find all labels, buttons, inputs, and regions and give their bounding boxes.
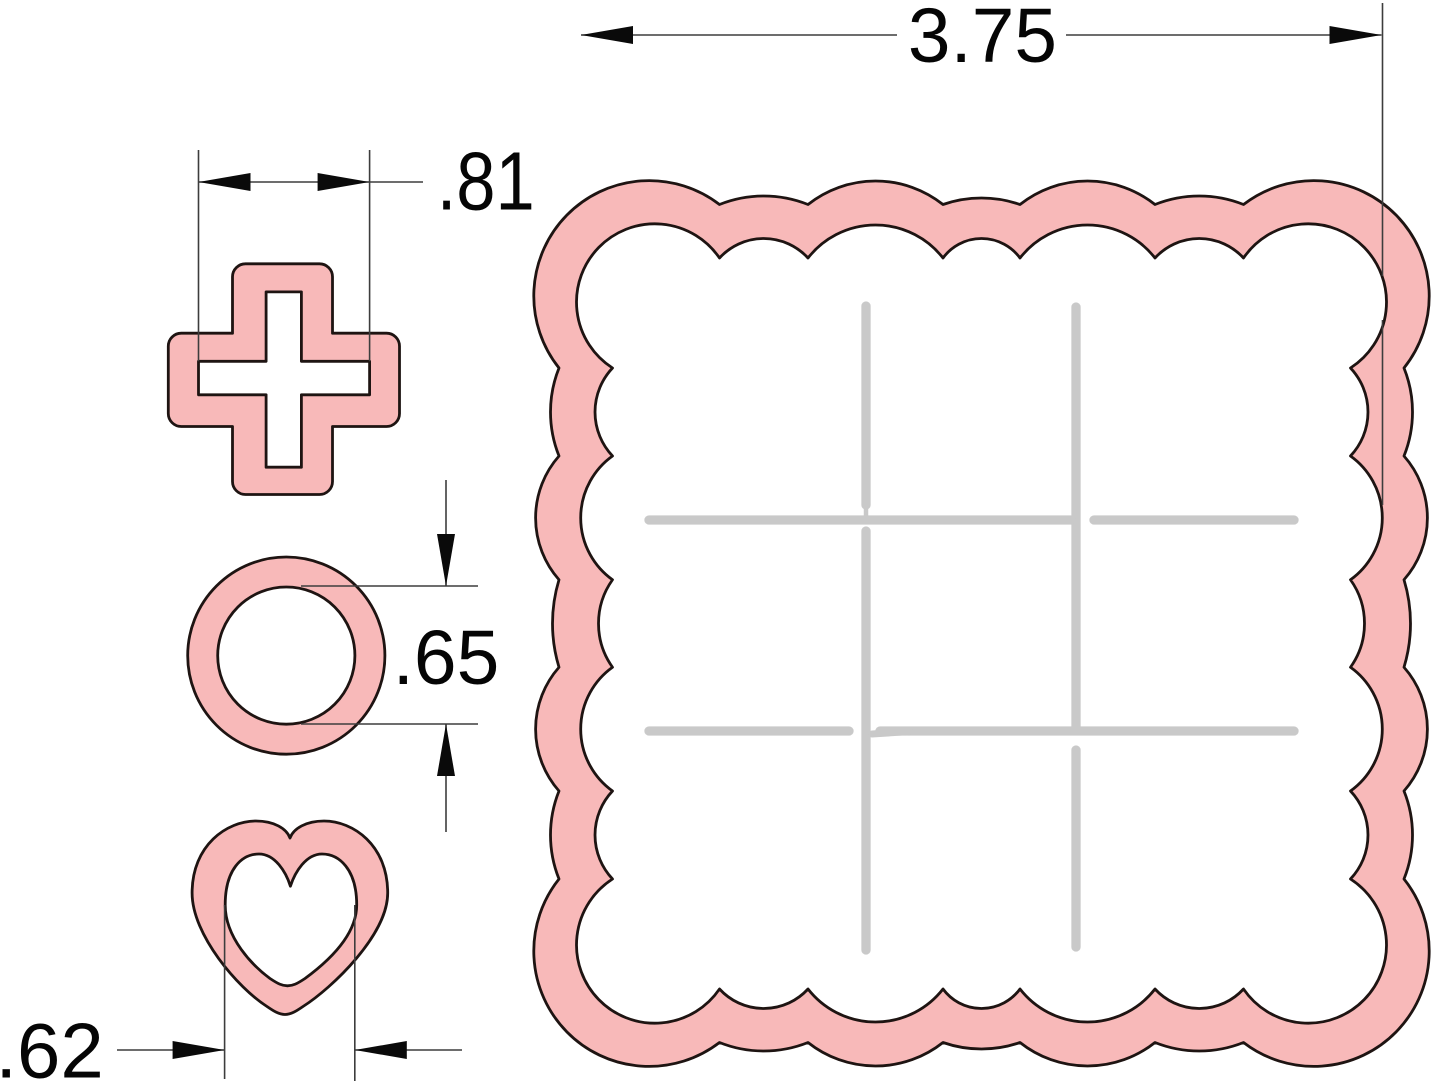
svg-text:.65: .65 (393, 615, 500, 701)
svg-text:.62: .62 (0, 1006, 104, 1086)
svg-text:.81: .81 (437, 135, 535, 228)
svg-text:3.75: 3.75 (908, 0, 1057, 79)
